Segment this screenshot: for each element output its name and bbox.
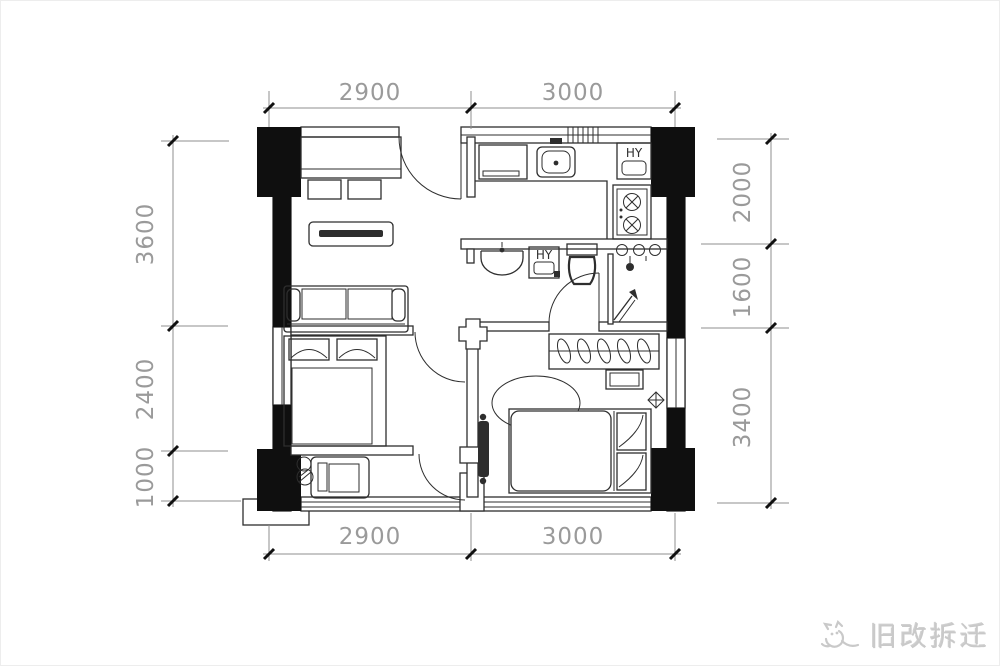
- desk-symbol: [311, 457, 369, 498]
- dimension-bottom: 2900 3000: [263, 513, 681, 561]
- watermark: 旧改拆迁: [819, 615, 990, 654]
- washer-label: HY: [536, 248, 553, 262]
- dim-right-1: 2000: [730, 161, 756, 224]
- kitchen-window: [568, 127, 598, 143]
- dimension-left: 3600 2400 1000: [133, 135, 241, 508]
- shower-area: [614, 245, 661, 323]
- floor-plan-image: HY HY: [0, 0, 1000, 666]
- bedroom2-sliding-door: [478, 414, 489, 484]
- dim-left-1: 3600: [133, 203, 159, 266]
- column-top-right: [651, 127, 695, 197]
- dimension-right: 2000 1600 3400: [701, 133, 789, 509]
- bathroom-left-stub: [467, 249, 474, 263]
- kitchen-left-wall: [467, 137, 475, 197]
- watermark-text: 旧改拆迁: [870, 615, 990, 654]
- desk-room-door: [419, 454, 465, 500]
- dim-bottom-left: 2900: [339, 524, 402, 550]
- bedroom1-door: [415, 332, 465, 382]
- dim-bottom-right: 3000: [542, 524, 605, 550]
- bedroom-2: [492, 370, 664, 493]
- water-heater-symbol: HY: [617, 143, 651, 179]
- shower-head-symbol: [626, 263, 634, 271]
- bedroom-1: [284, 336, 386, 446]
- shower-partition: [608, 254, 613, 324]
- dim-right-2: 1600: [730, 256, 756, 319]
- dim-left-2: 2400: [133, 358, 159, 421]
- dim-top-left: 2900: [339, 80, 402, 106]
- pier-right-upper: [667, 197, 685, 338]
- chair-symbol: [308, 180, 341, 199]
- pier-left-upper: [273, 197, 291, 327]
- pier-left-lower: [273, 405, 291, 449]
- top-wall-left: [301, 127, 399, 137]
- left-window: [273, 327, 291, 405]
- gas-stove-symbol: [613, 185, 651, 239]
- column-top-left: [257, 127, 301, 197]
- plant-symbol: [648, 392, 664, 408]
- pillow-symbol: [617, 413, 646, 450]
- column-bottom-right: [651, 448, 695, 511]
- dining-table-symbol: [301, 137, 401, 199]
- chair-symbol: [348, 180, 381, 199]
- shower-door-symbol: [614, 289, 638, 322]
- bathroom-top-wall: [461, 239, 667, 249]
- dim-top-right: 3000: [542, 80, 605, 106]
- cat-doodle-icon: [819, 617, 861, 653]
- pillow-symbol: [617, 453, 646, 490]
- nightstand-symbol: [606, 370, 643, 389]
- pier-right-lower: [667, 408, 685, 448]
- faucet-symbol: [550, 138, 562, 144]
- center-wall: [467, 336, 478, 497]
- dimension-top: 2900 3000: [263, 80, 681, 129]
- floor-plan-drawing: HY HY: [1, 1, 1000, 666]
- single-bed-symbol: [509, 409, 651, 493]
- partition-bedroom1-desk: [291, 446, 413, 455]
- kitchen-sink-symbol: [537, 138, 575, 177]
- tv-symbol: [319, 230, 383, 237]
- tv-console-symbol: [309, 222, 393, 246]
- fridge-symbol: [479, 145, 527, 179]
- kitchen: HY: [475, 138, 651, 239]
- entry-door: [399, 137, 461, 199]
- partition-living-bedroom1: [291, 326, 413, 335]
- right-window: [667, 338, 685, 408]
- sofa-symbol: [284, 286, 408, 332]
- double-bed-symbol: [284, 336, 386, 446]
- kitchen-counter-edge: [475, 181, 607, 239]
- desk-nook: [297, 457, 369, 498]
- dim-left-3: 1000: [133, 446, 159, 509]
- dim-right-3: 3400: [730, 386, 756, 449]
- toilet-symbol: [567, 244, 597, 284]
- water-heater-label: HY: [626, 146, 643, 160]
- washer-symbol: HY: [529, 247, 560, 278]
- wardrobe-symbol: [549, 334, 659, 369]
- column-bottom-left: [257, 449, 301, 511]
- bathroom-bottom-wall-left: [478, 322, 549, 331]
- living-dining: [284, 137, 408, 332]
